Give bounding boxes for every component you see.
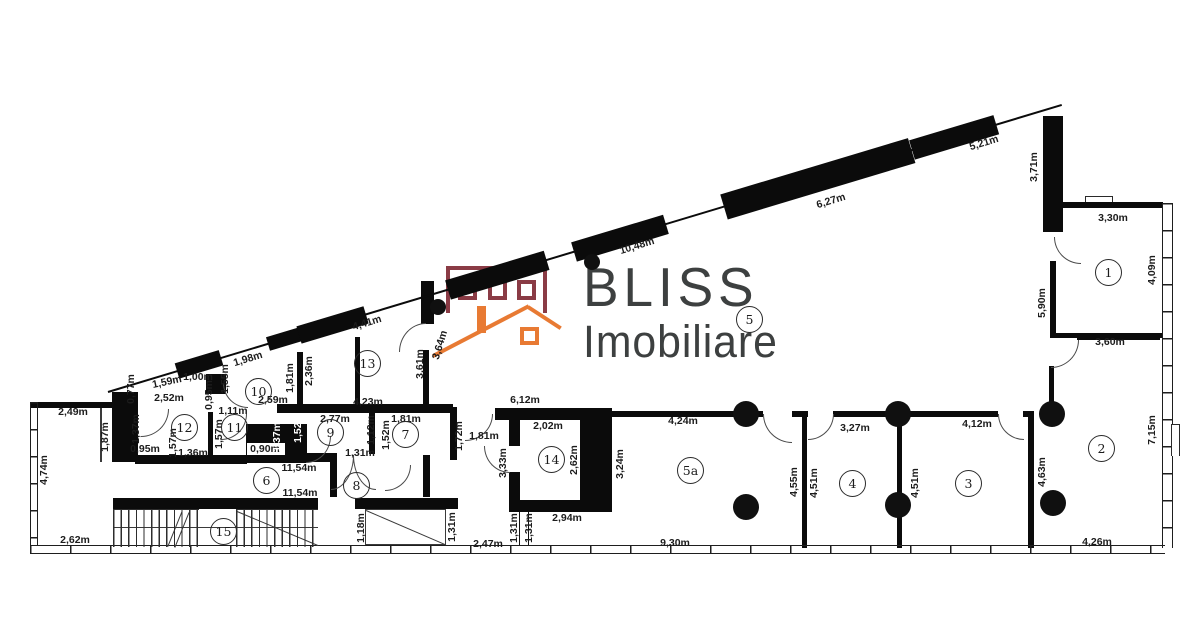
dimension-label: 1,31m bbox=[508, 513, 520, 543]
room-number: 7 bbox=[392, 421, 419, 448]
dimension-label: 1,37m bbox=[271, 422, 283, 452]
dimension-label: 1,18m bbox=[355, 513, 367, 543]
dimension-label: 2,62m bbox=[60, 534, 90, 546]
dimension-label: 3,24m bbox=[614, 449, 626, 479]
facade-wall bbox=[571, 215, 669, 262]
wall bbox=[1050, 261, 1056, 335]
wall bbox=[1028, 412, 1034, 548]
wall bbox=[792, 411, 808, 417]
dimension-label: 4,23m bbox=[353, 396, 383, 408]
room-number: 8 bbox=[343, 472, 370, 499]
door-arc bbox=[141, 409, 169, 437]
dimension-label: 1,52m bbox=[292, 413, 304, 443]
door-arc bbox=[385, 465, 411, 491]
wall bbox=[1043, 116, 1063, 232]
door-arc bbox=[1054, 237, 1081, 264]
dimension-label: 2,62m bbox=[568, 445, 580, 475]
wall bbox=[580, 414, 612, 510]
column bbox=[733, 494, 759, 520]
window-wall bbox=[30, 545, 1165, 554]
dimension-label: 4,74m bbox=[38, 455, 50, 485]
room-number: 13 bbox=[354, 350, 381, 377]
stair-flight bbox=[236, 509, 318, 547]
dimension-label: 0,95m bbox=[203, 380, 215, 410]
room-number: 1 bbox=[1095, 259, 1122, 286]
room-number: 9 bbox=[317, 419, 344, 446]
door-arc bbox=[763, 414, 792, 443]
column bbox=[584, 254, 600, 270]
dimension-label: 4,51m bbox=[909, 468, 921, 498]
room-number: 15 bbox=[210, 518, 237, 545]
window-wall bbox=[30, 402, 38, 545]
dimension-label: 1,72m bbox=[453, 421, 465, 451]
room-number: 14 bbox=[538, 446, 565, 473]
dimension-label: 4,63m bbox=[1036, 457, 1048, 487]
room-number: 6 bbox=[253, 467, 280, 494]
dimension-label: 1,36m bbox=[178, 447, 208, 459]
column bbox=[1039, 401, 1065, 427]
wall bbox=[833, 411, 998, 417]
dimension-label: 9,30m bbox=[660, 537, 690, 549]
logo-window-icon bbox=[517, 280, 536, 300]
dimension-label: 4,55m bbox=[788, 467, 800, 497]
window-bump bbox=[1171, 424, 1180, 456]
dimension-label: 1,31m bbox=[446, 512, 458, 542]
dimension-label: 4,51m bbox=[808, 468, 820, 498]
dimension-label: 11,54m bbox=[282, 487, 317, 499]
column bbox=[733, 401, 759, 427]
floor-plan: BLISS Imobiliare 5,21m6,27m10,48m4,41m1,… bbox=[0, 0, 1200, 624]
room-number: 2 bbox=[1088, 435, 1115, 462]
door-arc bbox=[399, 323, 426, 352]
dimension-label: 2,02m bbox=[533, 420, 563, 432]
room-number: 10 bbox=[245, 378, 272, 405]
dimension-label: 5,90m bbox=[1036, 288, 1048, 318]
dimension-label: 2,36m bbox=[303, 356, 315, 386]
column bbox=[885, 492, 911, 518]
wall bbox=[509, 420, 520, 446]
room-number: 11 bbox=[221, 414, 248, 441]
dimension-label: 4,26m bbox=[1082, 536, 1112, 548]
dimension-label: 0,95m bbox=[130, 443, 160, 455]
wall bbox=[802, 415, 807, 548]
dimension-label: 1,37m bbox=[130, 414, 142, 444]
dimension-label: 1,81m bbox=[284, 363, 296, 393]
dimension-label: 1,12m bbox=[365, 415, 377, 445]
logo-text-line1: BLISS bbox=[583, 260, 759, 315]
door-arc bbox=[1051, 340, 1079, 368]
dimension-label: 1,81m bbox=[469, 430, 499, 442]
dimension-label: 1,55m bbox=[219, 364, 231, 394]
dimension-label: 2,47m bbox=[473, 538, 503, 550]
dimension-label: 3,71m bbox=[1028, 152, 1040, 182]
room-number: 5 bbox=[736, 306, 763, 333]
dimension-label: 0,77m bbox=[125, 374, 137, 404]
room-number: 4 bbox=[839, 470, 866, 497]
dimension-label: 2,94m bbox=[552, 512, 582, 524]
wall bbox=[897, 413, 902, 548]
dimension-label: 3,30m bbox=[1098, 212, 1128, 224]
column bbox=[885, 401, 911, 427]
column bbox=[1040, 490, 1066, 516]
room-number: 3 bbox=[955, 470, 982, 497]
dimension-label: 3,27m bbox=[840, 422, 870, 434]
shaft bbox=[365, 509, 446, 545]
stair-flight bbox=[113, 509, 199, 547]
door-arc bbox=[998, 414, 1024, 440]
dimension-label: 2,52m bbox=[154, 392, 184, 404]
logo-chimney-icon bbox=[477, 306, 486, 333]
wall bbox=[355, 498, 458, 509]
dimension-label: 4,09m bbox=[1146, 255, 1158, 285]
dimension-label: 1,31m bbox=[345, 447, 375, 459]
dimension-label: 2,49m bbox=[58, 406, 88, 418]
wall bbox=[423, 455, 430, 497]
room-number: 5a bbox=[677, 457, 704, 484]
dimension-label: 3,61m bbox=[414, 349, 426, 379]
window-bump bbox=[1085, 196, 1113, 202]
door-arc bbox=[808, 414, 834, 440]
dimension-label: 4,24m bbox=[668, 415, 698, 427]
wall bbox=[1063, 202, 1163, 208]
logo-small-window-icon bbox=[520, 327, 539, 345]
dimension-label: 3,60m bbox=[1095, 336, 1125, 348]
dimension-label: 6,12m bbox=[510, 394, 540, 406]
room-number: 12 bbox=[171, 414, 198, 441]
facade-wall bbox=[266, 328, 302, 351]
dimension-label: 1,87m bbox=[99, 422, 111, 452]
dimension-label: 3,33m bbox=[497, 448, 509, 478]
dimension-label: 1,52m bbox=[380, 420, 392, 450]
column bbox=[430, 299, 446, 315]
dimension-label: 11,54m bbox=[281, 462, 316, 474]
wall bbox=[1023, 411, 1034, 417]
dimension-label: 7,15m bbox=[1146, 415, 1158, 445]
dimension-label: 1,31m bbox=[523, 513, 535, 543]
wall bbox=[113, 498, 318, 509]
dimension-label: 4,12m bbox=[962, 418, 992, 430]
window-wall bbox=[1162, 203, 1173, 548]
dimension-label: 6,27m bbox=[815, 191, 847, 211]
